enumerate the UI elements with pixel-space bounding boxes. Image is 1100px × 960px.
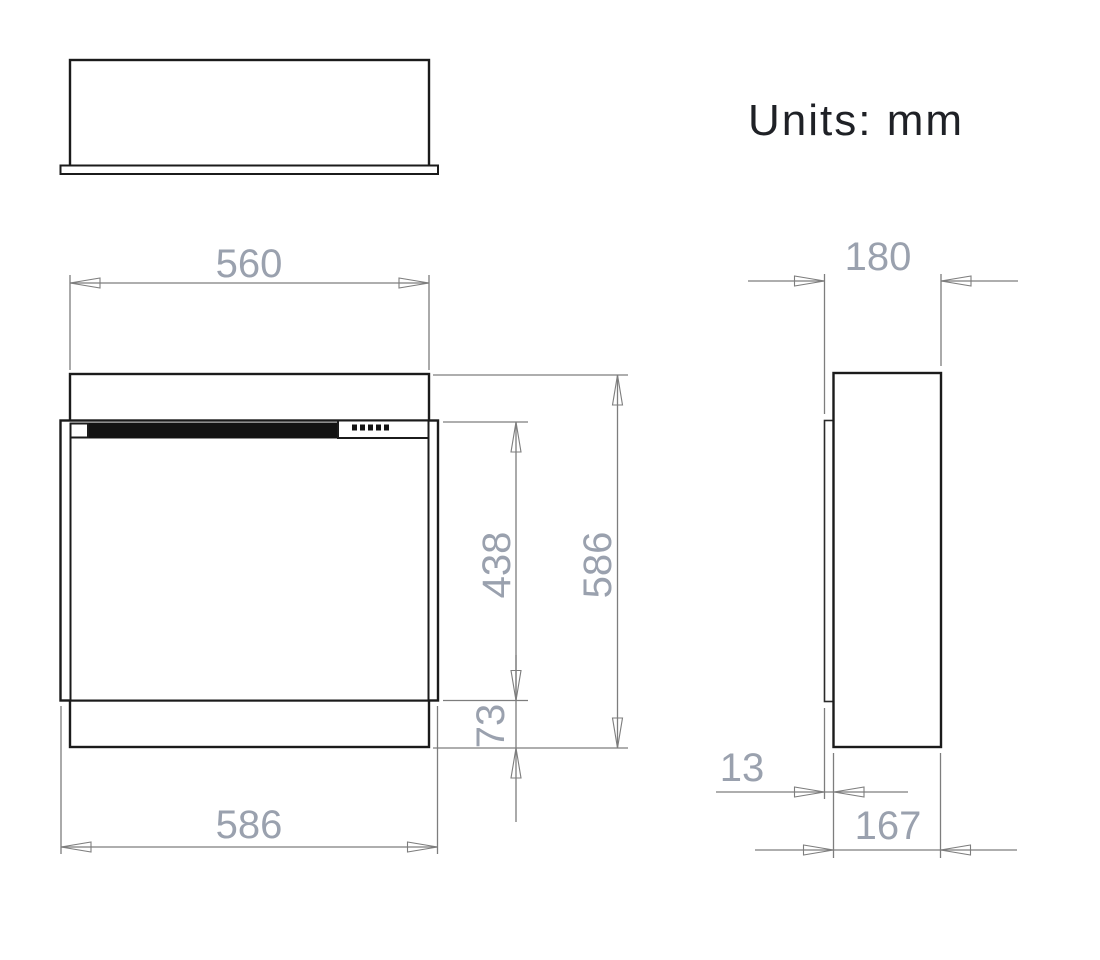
display-bar bbox=[88, 423, 338, 438]
dimension-drawing: Units: mm 560 bbox=[0, 0, 1100, 960]
dimension-body-depth: 167 bbox=[755, 753, 1017, 858]
dimension-body-width: 560 bbox=[70, 242, 429, 370]
control-dot bbox=[352, 425, 357, 431]
dimension-base-section-height: 73 bbox=[469, 655, 521, 822]
dimension-value: 586 bbox=[216, 803, 283, 847]
dimension-value: 13 bbox=[720, 746, 765, 790]
dimension-value: 438 bbox=[475, 532, 519, 599]
top-view-front-flange-outline bbox=[61, 166, 439, 175]
dimension-value: 180 bbox=[845, 235, 912, 279]
control-dot bbox=[376, 425, 381, 431]
dimension-value: 560 bbox=[216, 242, 283, 286]
units-label: Units: mm bbox=[748, 96, 964, 145]
dimension-value: 586 bbox=[576, 532, 620, 599]
display-bar-end-cell bbox=[71, 424, 89, 438]
top-view bbox=[61, 60, 439, 174]
control-dot bbox=[384, 425, 389, 431]
control-dot bbox=[360, 425, 365, 431]
control-panel bbox=[338, 421, 429, 439]
dimension-glass-section-height: 438 bbox=[443, 422, 528, 701]
front-view-opening-outline bbox=[71, 438, 429, 701]
control-dot bbox=[368, 425, 373, 431]
side-view bbox=[825, 373, 942, 747]
dimension-value: 73 bbox=[469, 704, 513, 749]
side-view-front-flange-outline bbox=[825, 421, 834, 702]
dimension-overall-height: 586 bbox=[433, 375, 628, 748]
side-view-body-outline bbox=[834, 373, 942, 747]
top-view-body-outline bbox=[70, 60, 429, 167]
front-view bbox=[61, 374, 439, 747]
dimension-value: 167 bbox=[855, 804, 922, 848]
